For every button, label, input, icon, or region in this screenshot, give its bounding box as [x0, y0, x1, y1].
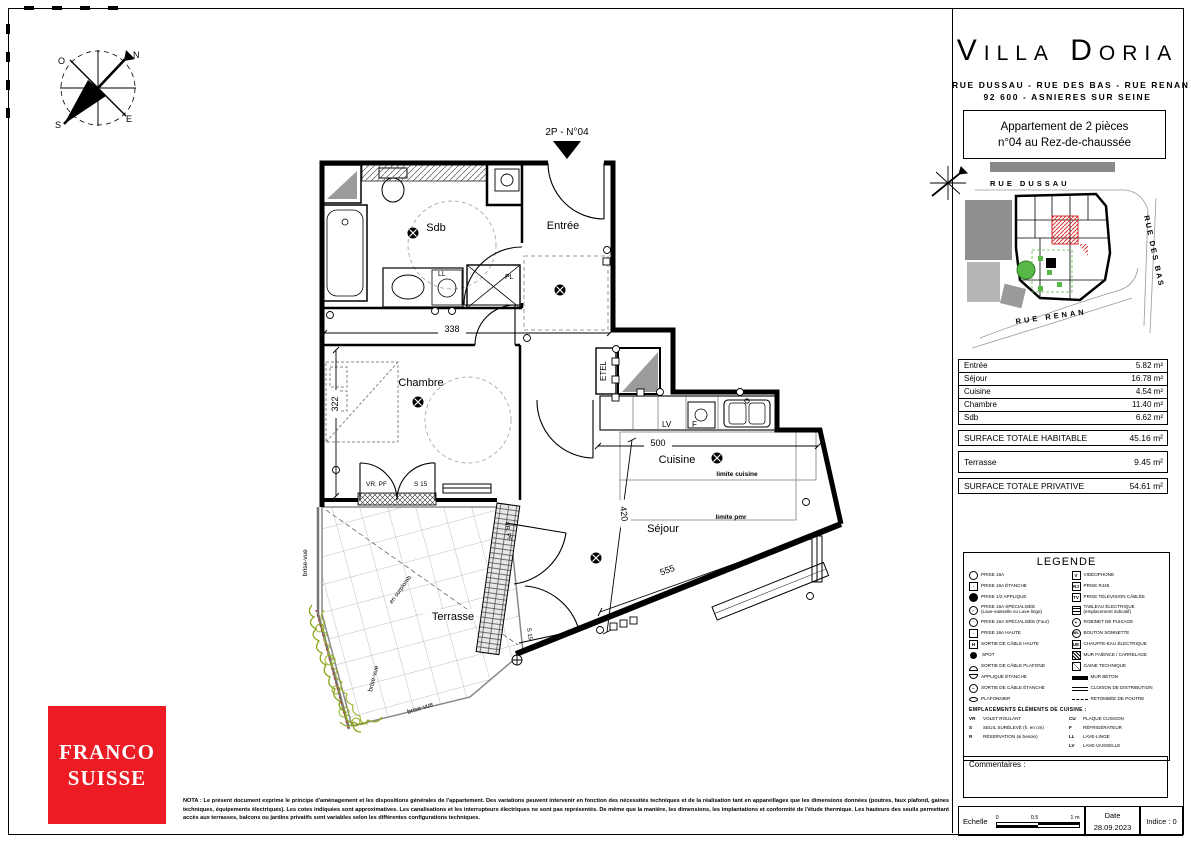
scale-tick: 1 m: [1070, 815, 1079, 821]
dim-420: 420: [618, 506, 630, 522]
legend-label: PRISE 16A ÉTANCHE: [981, 584, 1027, 589]
pmr-circle-sdb: [408, 201, 496, 289]
total-label: SURFACE TOTALE PRIVATIVE: [964, 481, 1084, 491]
legend-label: SPOT: [982, 653, 995, 658]
drawing-sheet: N S O E 2P - N°04 Terrasse: [0, 0, 1191, 842]
scale-tick: 0: [996, 815, 999, 821]
room-label-entree: Entrée: [547, 220, 579, 232]
label-limite-pmr: limite pmr: [715, 514, 747, 521]
special-socket-icon: ⌐: [969, 606, 978, 615]
socket-icon: [969, 571, 978, 580]
abbrev-label: RÉFRIGÉRATEUR: [1083, 725, 1122, 730]
abbrev: LV: [1069, 743, 1083, 748]
tv-socket-icon: TV: [1072, 593, 1081, 602]
site-block-gray: [965, 200, 1012, 260]
address-line-2: 92 600 - ASNIERES SUR SEINE: [952, 92, 1183, 102]
label-f: F: [692, 420, 697, 429]
legend-label: MUR BÉTON: [1091, 675, 1118, 680]
legend-label: PRISE RJ45: [1084, 584, 1110, 589]
faience-strip: [362, 165, 487, 181]
abbrev: CU: [1069, 716, 1083, 721]
dim-322: 322: [330, 396, 340, 411]
water-tap-icon: [512, 655, 522, 665]
technical-duct-icon: [1072, 662, 1081, 671]
row-label: Cuisine: [964, 387, 991, 397]
apartment-line-2: n°04 au Rez-de-chaussée: [964, 135, 1165, 151]
row-label: Sdb: [964, 413, 978, 423]
unit-label: 2P - N°04: [545, 127, 589, 138]
legend-label: CLOISON DE DISTRIBUTION: [1091, 686, 1153, 691]
entrance-arrow-icon: [553, 141, 581, 159]
site-unit-highlight: [1052, 216, 1078, 244]
legend-label: VIDÉOPHONE: [1084, 573, 1115, 578]
site-compass-icon: [930, 166, 967, 200]
apartment-info-box: Appartement de 2 pièces n°04 au Rez-de-c…: [963, 110, 1166, 159]
site-block-gray-3: [1000, 284, 1026, 309]
table-row: Cuisine4.54 m²: [958, 385, 1168, 398]
site-plan: RUE DUSSAU RUE DES BAS RUE RENAN: [920, 158, 1186, 354]
electrical-panel-icon: [1072, 606, 1081, 615]
room-label-chambre: Chambre: [398, 377, 443, 389]
compass-e: E: [126, 114, 132, 124]
abbrev-label: VOLET ROULANT: [983, 716, 1021, 721]
legend-title: LEGENDE: [964, 556, 1169, 568]
total-value: 54.61 m²: [1129, 481, 1163, 491]
row-label: Entrée: [964, 361, 988, 371]
site-building-outline: [1016, 194, 1110, 300]
date-value: 28.09.2023: [1086, 822, 1139, 834]
street-name-top: RUE DUSSAU: [990, 179, 1070, 188]
scale-tick: 0.5: [1031, 815, 1039, 821]
dim-555: 555: [659, 563, 677, 578]
kitchen-legend-section: EMPLACEMENTS ÉLÉMENTS DE CUISINE : VRVOL…: [964, 705, 1169, 750]
row-value: 16.78 m²: [1131, 374, 1163, 384]
room-label-etel: ETEL: [599, 360, 608, 381]
water-heater-icon: UE: [1072, 640, 1081, 649]
entree-pmr-zone: [524, 256, 608, 330]
total-private-row: SURFACE TOTALE PRIVATIVE54.61 m²: [958, 478, 1168, 494]
label-s15: S 15: [414, 481, 428, 488]
abbrev-label: RÉSERVATION (si besoin): [983, 734, 1038, 739]
interior-walls: [322, 163, 522, 500]
date-cell: Date 28.09.2023: [1085, 806, 1140, 836]
beam-icon: [1072, 699, 1088, 700]
tiling-icon: [1072, 651, 1081, 660]
waterproof-wall-light-icon: [969, 674, 978, 679]
legend-label-2: (Lave-vaisselle ou Lave-linge): [981, 609, 1042, 614]
legend-label: SORTIE DE CÂBLE HAUTE: [981, 642, 1039, 647]
total-label: SURFACE TOTALE HABITABLE: [964, 433, 1087, 443]
legend-label: PRISE 16A: [981, 573, 1004, 578]
high-socket-icon: ·: [969, 629, 978, 638]
room-label-sdb: Sdb: [426, 222, 446, 234]
hand-basin: [495, 169, 519, 191]
legend-label: SORTIE DE CÂBLE PLAFOND: [981, 664, 1045, 669]
table-row: Entrée5.82 m²: [958, 359, 1168, 372]
abbrev-label: LAVE-LINGE: [1083, 734, 1110, 739]
pmr-circle-chambre: [425, 377, 511, 463]
legend-label: PRISE 16A HAUTE: [981, 631, 1021, 636]
washbasin-counter: [383, 268, 463, 307]
room-label-terrasse: Terrasse: [432, 611, 474, 623]
legend-box: LEGENDE PRISE 16A ◦PRISE 16A ÉTANCHE PRI…: [963, 552, 1170, 761]
legend-label: MUR FAÏENCE / CARRELAGE: [1084, 653, 1148, 658]
bathtub: [323, 205, 367, 301]
nota-disclaimer: NOTA : Le présent document exprime le pr…: [183, 797, 949, 823]
row-label: Chambre: [964, 400, 997, 410]
half-applique-socket-icon: [969, 593, 978, 602]
date-label: Date: [1086, 810, 1139, 822]
legend-label: CHAUFFE-EAU ÉLECTRIQUE: [1084, 642, 1147, 647]
abbrev: LL: [1069, 734, 1083, 739]
street-name-bottom: RUE RENAN: [1015, 307, 1087, 326]
terrace-row: Terrasse9.45 m²: [958, 451, 1168, 473]
abbrev: F: [1069, 725, 1083, 730]
franco-suisse-logo: FRANCO SUISSE: [48, 706, 166, 824]
indice-cell: Indice : 0: [1140, 806, 1183, 836]
terrace-label: Terrasse: [964, 457, 997, 467]
site-block-gray-2: [967, 262, 1000, 302]
legend-label: SORTIE DE CÂBLE ÉTANCHE: [981, 686, 1045, 691]
spot-icon: [970, 652, 977, 659]
label-vrpf: VR. PF: [366, 481, 387, 488]
waterproof-socket-icon: ◦: [969, 582, 978, 591]
row-value: 5.82 m²: [1136, 361, 1163, 371]
label-pl: PL: [505, 274, 514, 281]
table-row: Séjour16.78 m²: [958, 372, 1168, 385]
surface-table: Entrée5.82 m² Séjour16.78 m² Cuisine4.54…: [958, 359, 1168, 494]
partition-wall-icon: [1072, 687, 1088, 691]
row-label: Séjour: [964, 374, 987, 384]
scale-label: Echelle: [963, 817, 988, 826]
kitchen-counter: [600, 396, 777, 430]
label-ll: LL: [438, 271, 446, 278]
waterproof-cable-outlet-icon: ~: [969, 684, 978, 693]
row-value: 11.40 m²: [1132, 400, 1163, 410]
comments-box: Commentaires :: [963, 756, 1168, 798]
label-s15-2: S 15: [525, 627, 533, 641]
abbrev: VR: [969, 716, 983, 721]
panel-divider: [952, 8, 953, 833]
legend-label: BOUTON SONNETTE: [1084, 631, 1130, 636]
abbrev-label: LAVE-VAISSELLE: [1083, 743, 1120, 748]
abbrev-label: SEUIL SURÉLEVÉ (h. en cm): [983, 725, 1044, 730]
compass-s: S: [55, 120, 61, 130]
apartment-line-1: Appartement de 2 pièces: [964, 119, 1165, 135]
site-building-bar: [990, 162, 1115, 172]
indice-value: Indice : 0: [1146, 817, 1176, 826]
videophone-icon: V: [1072, 571, 1081, 580]
row-value: 4.54 m²: [1136, 387, 1163, 397]
ceiling-lamp-icon: [969, 697, 978, 702]
compass-o: O: [58, 56, 65, 66]
logo-line-1: FRANCO: [48, 739, 166, 765]
address-line-1: RUE DUSSAU - RUE DES BAS - RUE RENAN: [952, 80, 1183, 90]
legend-label: PRISE 16A SPÉCIALISÉE (Four): [981, 620, 1049, 625]
legend-label: ROBINET DE PUISAGE: [1084, 620, 1134, 625]
unit-marker: 2P - N°04: [545, 127, 589, 159]
oven-socket-icon: ¨: [969, 618, 978, 627]
table-row: Sdb6.62 m²: [958, 411, 1168, 425]
row-value: 6.62 m²: [1136, 413, 1163, 423]
legend-label: APPLIQUE ÉTANCHE: [981, 675, 1027, 680]
water-tap-legend-icon: +: [1072, 618, 1081, 627]
legend-label: PRISE TÉLÉVISION CÂBLÉE: [1084, 595, 1145, 600]
legend-label-2: (emplacement indicatif): [1084, 609, 1132, 614]
dim-338: 338: [444, 324, 459, 334]
legend-label: GAINE TECHNIQUE: [1084, 664, 1127, 669]
total-value: 45.16 m²: [1129, 433, 1163, 443]
rj45-icon: RJ: [1072, 582, 1081, 591]
comments-label: Commentaires :: [969, 760, 1025, 769]
label-lv: LV: [662, 420, 672, 429]
compass-n: N: [133, 50, 140, 60]
etel-closet: ETEL: [596, 348, 660, 394]
kitchen-legend-header: EMPLACEMENTS ÉLÉMENTS DE CUISINE :: [969, 707, 1169, 713]
abbrev-label: PLAQUE CUISSON: [1083, 716, 1124, 721]
total-habitable-row: SURFACE TOTALE HABITABLE45.16 m²: [958, 430, 1168, 446]
label-limite-cuisine: limite cuisine: [716, 471, 758, 478]
legend-label: PRISE 1/2 APPLIQUE: [981, 595, 1026, 600]
dim-500: 500: [650, 438, 665, 448]
terrace-value: 9.45 m²: [1134, 457, 1163, 467]
concrete-wall-icon: [1072, 676, 1088, 680]
label-brise-vue-1: brise-vue: [302, 549, 309, 576]
room-label-cuisine: Cuisine: [659, 454, 696, 466]
doorbell-icon: BEL: [1072, 629, 1081, 638]
table-row: Chambre11.40 m²: [958, 398, 1168, 411]
abbrev: R: [969, 734, 983, 739]
legend-label: PLAFONNIER: [981, 697, 1010, 702]
legend-left-column: PRISE 16A ◦PRISE 16A ÉTANCHE PRISE 1/2 A…: [964, 570, 1067, 705]
scale-cell: Echelle 0 0.5 1 m: [958, 806, 1085, 836]
project-title: Villa Doria: [952, 34, 1183, 68]
compass-rose: N S O E: [55, 50, 140, 130]
room-label-sejour: Séjour: [647, 523, 679, 535]
ceiling-cable-outlet-icon: [969, 666, 978, 671]
legend-right-column: VVIDÉOPHONE RJPRISE RJ45 TVPRISE TÉLÉVIS…: [1067, 570, 1170, 705]
abbrev: S: [969, 725, 983, 730]
scale-bar: 0 0.5 1 m: [996, 815, 1080, 828]
high-cable-outlet-icon: H: [969, 640, 978, 649]
legend-label: RETOMBÉE DE POUTRE: [1091, 697, 1145, 702]
logo-line-2: SUISSE: [48, 765, 166, 791]
shower-gaine: [323, 165, 361, 203]
